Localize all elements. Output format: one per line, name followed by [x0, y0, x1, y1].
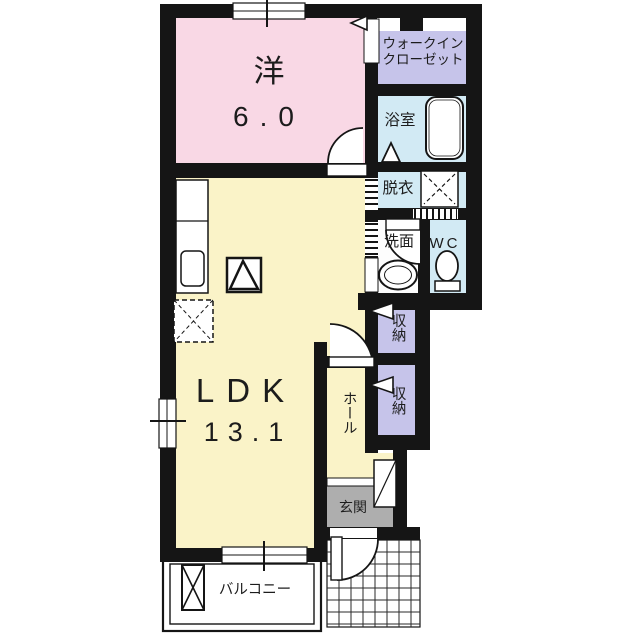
label-balcony: バルコニー [205, 582, 305, 599]
floor-plan-drawing [0, 0, 640, 640]
door-leaf-western [327, 164, 367, 176]
label-western-size: 6.0 [214, 101, 324, 133]
wall-wic-notch [400, 18, 423, 31]
label-ldk: LDK [184, 372, 308, 410]
wall-storage-bottom [370, 435, 430, 450]
label-wic-line2: クローゼット [383, 52, 464, 67]
floor-plan: 洋 6.0 ウォークインクローゼット 浴室 脱衣 洗面 WC 収納 収納 LDK… [0, 0, 640, 640]
label-wic: ウォークインクローゼット [372, 36, 474, 67]
label-storage-lower: 収納 [389, 386, 406, 415]
door-leaf-washroom [386, 219, 420, 230]
label-western-room: 洋 [229, 54, 309, 90]
bathtub [426, 97, 463, 159]
label-entrance: 玄関 [323, 499, 383, 515]
door-leaf-hall [329, 357, 374, 367]
label-wic-line1: ウォークイン [383, 36, 464, 51]
wall-storage-left [365, 300, 378, 453]
door-leaf-entrance [331, 537, 342, 580]
wall-niche-gap [365, 258, 378, 292]
wall-exterior-top [160, 4, 482, 18]
label-hall: ホール [340, 391, 357, 435]
wic-notch-gap [377, 18, 400, 31]
label-ldk-size: 13.1 [186, 417, 310, 448]
entrance-step-line [327, 478, 378, 486]
label-storage-upper: 収納 [389, 313, 406, 342]
kitchen-sink [181, 251, 204, 286]
wall-ldk-hall [314, 342, 327, 562]
toilet-bowl [436, 251, 458, 281]
toilet-tank [435, 281, 460, 291]
label-dressing: 脱衣 [368, 180, 428, 198]
label-bath: 浴室 [370, 112, 430, 130]
label-wc: WC [415, 235, 475, 252]
wall-wic-bath [365, 84, 482, 96]
wall-storage-right [415, 298, 430, 450]
wall-exterior-left [160, 4, 176, 562]
